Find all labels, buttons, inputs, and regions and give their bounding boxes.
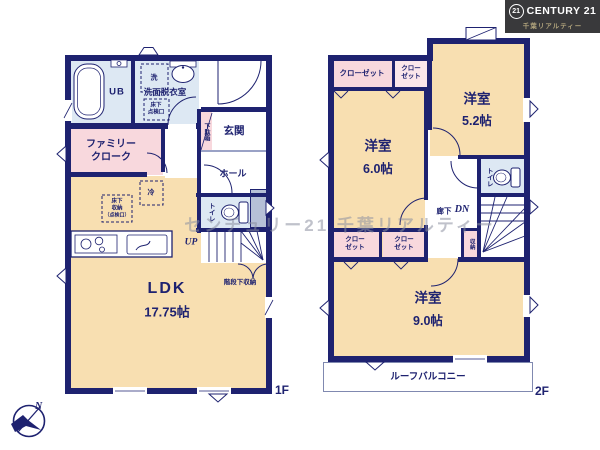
wall xyxy=(161,123,165,172)
logo-badge-21: 21 xyxy=(509,4,524,19)
label-up: UP xyxy=(185,238,198,248)
wall xyxy=(328,55,334,362)
label-floor2: 2F xyxy=(535,385,549,397)
wall xyxy=(427,38,433,61)
label-closet-d-1: クロー xyxy=(394,237,414,244)
logo-name: CENTURY 21 xyxy=(527,5,597,17)
label-hall: ホール xyxy=(219,170,246,179)
entrance-step-line xyxy=(201,150,266,152)
label-ub: UB xyxy=(109,87,125,97)
label-underfloor-storage-2: 収納 xyxy=(111,206,122,212)
wall xyxy=(524,38,530,362)
wall xyxy=(196,193,266,197)
wall xyxy=(427,38,530,44)
compass-north-label: N xyxy=(34,401,43,412)
floorplan-canvas: N UB 洗面脱衣室 洗 床下 点検口 玄関 下駄箱 ホール トイレ ファミリー… xyxy=(0,0,600,450)
label-underfloor-storage-1: 床下 xyxy=(111,199,122,205)
label-ldk-size: 17.75帖 xyxy=(144,306,190,319)
label-bedroom52-name: 洋室 xyxy=(464,92,491,106)
label-bedroom90-size: 9.0帖 xyxy=(413,315,443,328)
wall xyxy=(458,155,530,159)
wall xyxy=(65,172,147,177)
wall xyxy=(328,356,530,362)
label-shoe-box: 下駄箱 xyxy=(203,123,209,141)
label-underfloor-access-1: 床下 xyxy=(150,103,161,109)
label-family-cloak-2: クローク xyxy=(91,153,131,163)
logo-subtitle: 千葉リアルティー xyxy=(523,20,583,30)
label-roof-balcony: ルーフバルコニー xyxy=(390,372,465,382)
label-family-cloak-1: ファミリー xyxy=(86,140,136,150)
label-underfloor-storage-3: （点検口） xyxy=(104,214,129,219)
wall xyxy=(328,55,432,61)
room-corridor-1f xyxy=(165,129,197,178)
wall xyxy=(65,55,71,394)
wall xyxy=(477,193,530,197)
wall xyxy=(201,107,266,112)
wall xyxy=(328,257,428,262)
front-door-arc xyxy=(218,61,261,104)
label-washer: 洗 xyxy=(151,75,158,82)
watermark-text: センチュリー21 千葉リアルティー xyxy=(130,211,550,236)
label-ldk-name: LDK xyxy=(148,281,187,297)
century21-logo: 21 CENTURY 21 千葉リアルティー xyxy=(505,0,600,33)
label-storage-2f: 収納 xyxy=(468,239,474,250)
wall xyxy=(331,87,428,91)
label-bedroom60-name: 洋室 xyxy=(365,139,392,153)
label-bedroom60-size: 6.0帖 xyxy=(363,163,393,176)
label-closet-small-2: ゼット xyxy=(401,74,421,81)
label-entrance: 玄関 xyxy=(224,126,245,137)
wall xyxy=(65,388,272,394)
label-bedroom90-name: 洋室 xyxy=(415,291,442,305)
label-underfloor-access-2: 点検口 xyxy=(148,110,165,116)
label-floor1: 1F xyxy=(275,384,289,396)
label-closet-c-2: ゼット xyxy=(345,245,365,252)
wall xyxy=(65,55,272,61)
room-bedroom-6_0 xyxy=(333,90,425,230)
wall xyxy=(392,58,395,87)
label-closet-c-1: クロー xyxy=(345,237,365,244)
label-under-stairs-storage: 階段下収納 xyxy=(224,280,257,287)
compass-icon: N xyxy=(11,401,45,437)
label-closet-d-2: ゼット xyxy=(394,245,414,252)
wall xyxy=(458,257,530,262)
wall xyxy=(424,90,428,200)
label-fridge: 冷 xyxy=(148,190,155,197)
label-closet-wide: クローゼット xyxy=(340,69,385,77)
label-washroom: 洗面脱衣室 xyxy=(144,88,187,97)
label-toilet-2f: トイレ xyxy=(485,167,492,187)
label-closet-small-1: クロー xyxy=(401,66,421,73)
room-family-cloak xyxy=(68,127,163,175)
wall xyxy=(477,159,481,197)
label-bedroom52-size: 5.2帖 xyxy=(462,115,492,128)
wall xyxy=(131,58,135,124)
wall xyxy=(65,123,168,129)
